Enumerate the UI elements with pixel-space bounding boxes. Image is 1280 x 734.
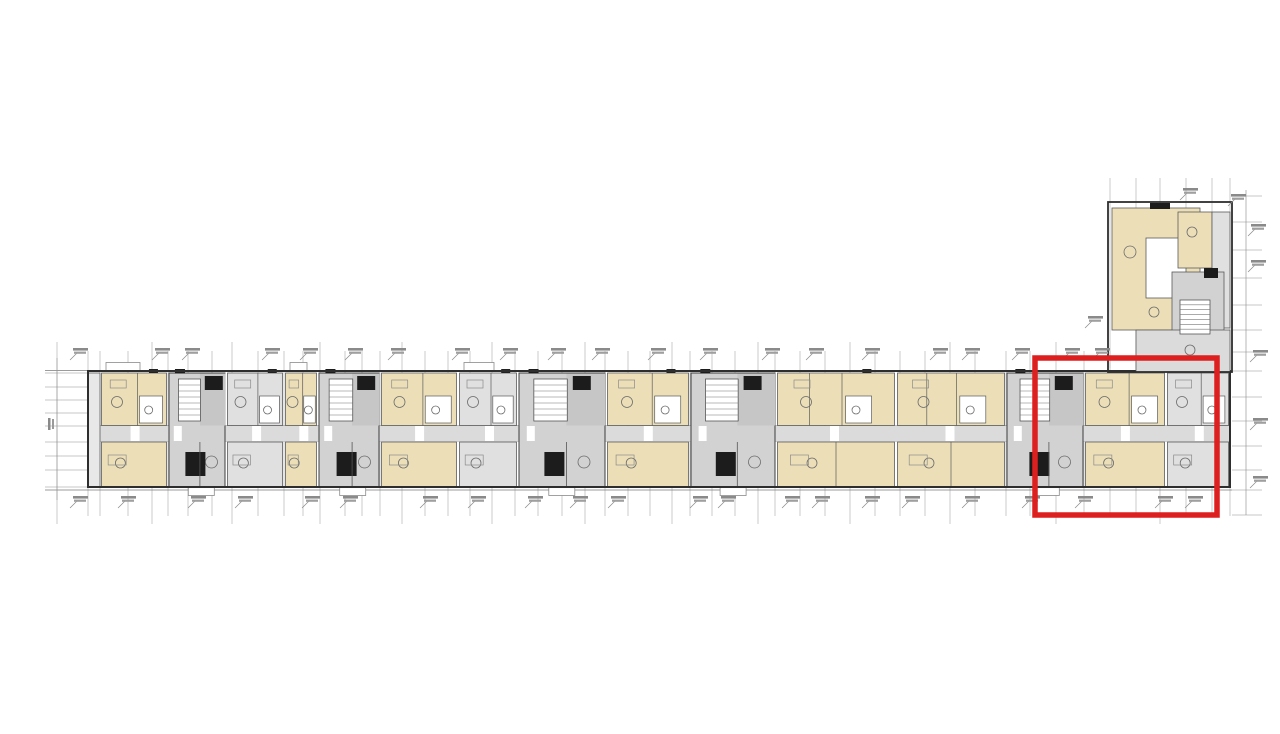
door-gap [830, 426, 839, 441]
bath-pod [425, 396, 451, 423]
unit-module [286, 363, 317, 487]
elevator-shaft [744, 376, 762, 390]
bath-pod [655, 396, 681, 423]
elevator-shaft [357, 376, 375, 390]
door-gap [699, 426, 707, 441]
door-gap [485, 426, 494, 441]
wing [1108, 202, 1232, 372]
entry-step [340, 488, 366, 496]
door-gap [1195, 426, 1204, 441]
room-lower [460, 442, 517, 487]
door-gap [131, 426, 140, 441]
bath-pod [960, 396, 986, 423]
room-lower [608, 442, 689, 487]
entry-step [549, 488, 575, 496]
bath-pod [1132, 396, 1158, 423]
elevator-shaft [573, 376, 591, 390]
door-gap [644, 426, 653, 441]
bath-pod [304, 396, 316, 423]
elevator-shaft [716, 452, 736, 476]
elevator-shaft [205, 376, 223, 390]
bath-pod [846, 396, 872, 423]
core-module [169, 369, 225, 496]
elevator-shaft [1055, 376, 1073, 390]
door-gap [1014, 426, 1022, 441]
door-gap [1121, 426, 1130, 441]
end-cap [88, 373, 100, 487]
core-module [519, 369, 605, 496]
unit-module [460, 363, 517, 487]
door-gap [415, 426, 424, 441]
room-upper [778, 373, 895, 426]
core-module [1007, 369, 1083, 496]
elevator-shaft [337, 452, 357, 476]
balcony [106, 363, 140, 372]
wing-room-upper-right [1178, 212, 1212, 268]
elevator-shaft [544, 452, 564, 476]
balcony [464, 363, 494, 372]
room-upper [898, 373, 1005, 426]
core-module [319, 369, 379, 496]
entry-step [188, 488, 214, 496]
room-lower [286, 442, 317, 487]
bath-pod [493, 396, 513, 423]
door-gap [324, 426, 332, 441]
room-lower [228, 442, 283, 487]
door-gap [299, 426, 308, 441]
unit-module [102, 363, 167, 487]
blueprint-viewport [0, 0, 1280, 734]
wing-shaft [1150, 203, 1170, 209]
wing-shaft [1204, 268, 1218, 278]
door-gap [527, 426, 535, 441]
bath-pod [1203, 396, 1225, 423]
floor-plan-svg [0, 0, 1280, 734]
entry-step [720, 488, 746, 496]
bath-pod [260, 396, 280, 423]
door-gap [946, 426, 955, 441]
core-module [691, 369, 775, 496]
balcony [290, 363, 307, 372]
bath-pod [139, 396, 162, 423]
door-gap [252, 426, 261, 441]
room-lower [1086, 442, 1165, 487]
elevator-shaft [185, 452, 205, 476]
room-lower [102, 442, 167, 487]
door-gap [174, 426, 182, 441]
room-lower [382, 442, 457, 487]
